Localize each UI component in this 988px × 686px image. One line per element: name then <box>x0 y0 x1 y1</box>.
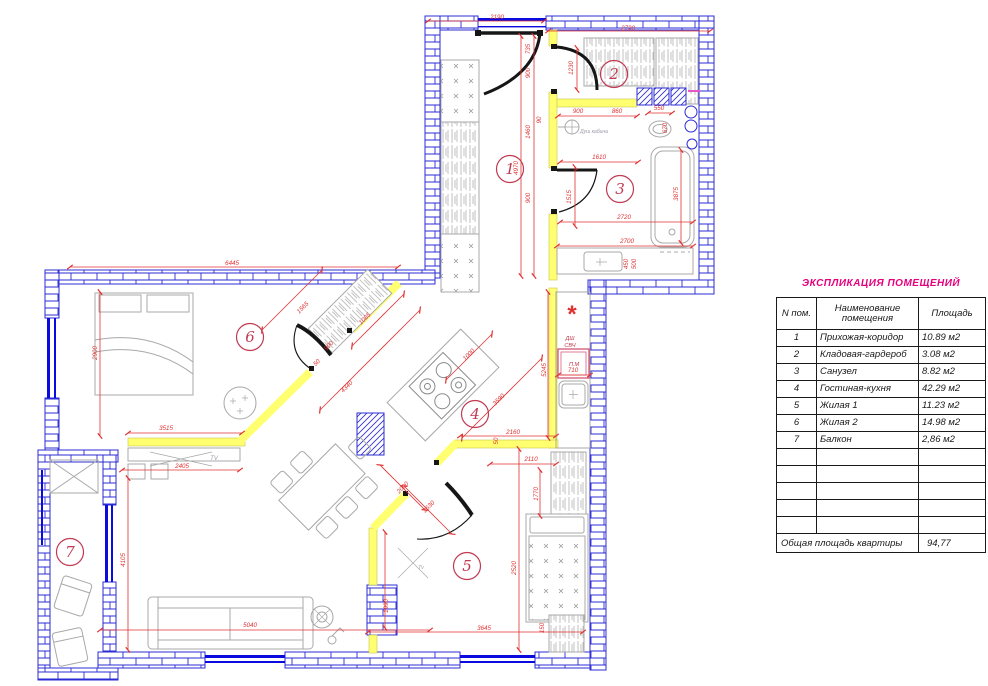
window-left <box>47 318 50 398</box>
chair <box>270 470 294 494</box>
dimension-label: 3590 <box>492 392 507 407</box>
chair <box>335 495 359 519</box>
wardrobe-room5-top <box>551 452 586 514</box>
table-header-row: N пом. Наименованиепомещения Площадь <box>777 298 985 330</box>
dimension-label: 1230 <box>568 61 575 75</box>
table-row: 6Жилая 214.98 м2 <box>777 415 985 432</box>
table-cell: 10.89 м2 <box>919 330 985 347</box>
window-bottom-1-inner <box>205 661 285 663</box>
wall-balcony-bottom <box>38 668 118 680</box>
window-left-inner <box>54 318 56 398</box>
room-number: 3 <box>615 180 625 198</box>
window-bottom-1 <box>205 655 285 658</box>
annotation-label: П.М <box>569 362 580 368</box>
table-cell: Кладовая-гардероб <box>817 347 919 364</box>
partition-room5-top <box>455 440 558 448</box>
door-room3 <box>551 166 597 214</box>
bed-room6 <box>95 293 193 395</box>
wall-balcony-left <box>38 455 50 680</box>
table-cell: 1 <box>777 330 817 347</box>
wall-bath-bottom <box>588 280 714 294</box>
window-bottom-2-inner <box>460 661 535 663</box>
room-number: 7 <box>65 543 75 561</box>
room-number: 5 <box>462 557 472 575</box>
table-cell: Санузел <box>817 364 919 381</box>
explication-table: ЭКСПЛИКАЦИЯ ПОМЕЩЕНИЙ N пом. Наименовани… <box>776 278 986 553</box>
dimension-lines <box>70 21 710 650</box>
dimension-label: 1770 <box>533 487 540 501</box>
table-cell: 8.82 м2 <box>919 364 985 381</box>
table-row <box>777 500 985 517</box>
bathroom-sink <box>584 252 622 271</box>
partition-room2-bottom <box>557 99 637 107</box>
pillow <box>530 517 584 533</box>
balcony-storage-box <box>50 460 98 493</box>
chair <box>355 476 379 500</box>
room-number: 1 <box>505 160 515 178</box>
wall-left-seg2 <box>45 398 59 455</box>
dimension-label: 50 <box>493 437 500 444</box>
header-num: N пом. <box>777 298 817 330</box>
shower-head-icon <box>558 120 579 134</box>
wardrobe-room5-bottom <box>549 615 584 652</box>
table-row <box>777 483 985 500</box>
table-cell: 3.08 м2 <box>919 347 985 364</box>
table-row: 1Прихожая-коридор10.89 м2 <box>777 330 985 347</box>
table-cell: 4 <box>777 381 817 398</box>
dimension-label: 670 <box>662 122 669 133</box>
dimension-label: 1565 <box>296 300 311 315</box>
table-cell <box>817 500 919 517</box>
dimension-label: 550 <box>654 105 665 112</box>
table-cell <box>817 449 919 466</box>
table-cell <box>777 500 817 517</box>
table-cell: Жилая 2 <box>817 415 919 432</box>
dimension-label: 5040 <box>243 622 257 629</box>
entry-door <box>475 30 543 94</box>
wardrobe-hall-mid <box>441 122 479 234</box>
table-cell: 2 <box>777 347 817 364</box>
table-cell <box>919 517 985 534</box>
wall-right-main <box>590 280 606 670</box>
wall-hall-left <box>425 16 440 278</box>
table-cell: 42.29 м2 <box>919 381 985 398</box>
table-cell: 11.23 м2 <box>919 398 985 415</box>
table-cell <box>919 483 985 500</box>
dimension-label: 1515 <box>566 190 573 204</box>
header-name: Наименованиепомещения <box>817 298 919 330</box>
plan-annotations: *ДШСВЧП.МДуш кабинаTVTv <box>210 129 608 571</box>
dimension-label: 2520 <box>511 561 518 576</box>
table-title: ЭКСПЛИКАЦИЯ ПОМЕЩЕНИЙ <box>776 278 986 289</box>
annotation-label: Душ кабина <box>579 129 608 135</box>
table-cell <box>817 517 919 534</box>
table-cell <box>919 500 985 517</box>
table-cell <box>817 466 919 483</box>
table-cell: 6 <box>777 415 817 432</box>
header-area: Площадь <box>919 298 985 330</box>
wall-bottom-seg2 <box>285 652 460 668</box>
wall-bottom-seg1 <box>98 652 205 668</box>
dimension-label: 2720 <box>620 25 635 32</box>
table-total-row: Общая площадь квартиры 94,77 <box>777 534 985 552</box>
dimension-label: 2630 <box>421 499 437 515</box>
side-table-round <box>311 606 333 628</box>
room-number: 6 <box>245 328 255 346</box>
window-balcony-left <box>41 470 43 545</box>
table-cell: 14.98 м2 <box>919 415 985 432</box>
table-cell: Прихожая-коридор <box>817 330 919 347</box>
wardrobe-hall-bottom <box>441 234 479 292</box>
door-room5 <box>403 460 472 539</box>
table-cell: 2,86 м2 <box>919 432 985 449</box>
table-row: 4Гостиная-кухня42.29 м2 <box>777 381 985 398</box>
table-row <box>777 449 985 466</box>
dimension-label: 5245 <box>541 363 548 377</box>
vent-shaft-room5 <box>367 585 397 635</box>
annotation-label: TV <box>210 456 219 462</box>
table-row <box>777 517 985 534</box>
dimension-label: 1000 <box>462 347 477 362</box>
plant-icon <box>224 387 256 419</box>
dimension-label: 1460 <box>525 125 532 139</box>
table-row: 7Балкон2,86 м2 <box>777 432 985 449</box>
table-cell <box>777 449 817 466</box>
dimension-label: 3515 <box>159 425 173 432</box>
dimension-label: 710 <box>568 367 579 374</box>
dimension-label: 3875 <box>673 187 680 201</box>
dimension-label: 450 <box>623 258 630 269</box>
dimension-label: 900 <box>573 108 584 115</box>
dimension-label: 90 <box>536 116 543 123</box>
dimension-label: 4105 <box>120 553 127 567</box>
table-cell <box>777 517 817 534</box>
room-number: 4 <box>469 405 480 423</box>
dimension-label: 735 <box>525 43 532 54</box>
table-cell <box>777 466 817 483</box>
annotation-label: Tv <box>418 565 424 571</box>
dimension-label: 2700 <box>619 238 634 245</box>
dimension-label: 6445 <box>225 260 239 267</box>
entry-lintel <box>478 18 546 21</box>
dimension-label: 2405 <box>174 463 189 470</box>
dimension-label: 500 <box>631 258 638 269</box>
kitchen-sink <box>559 381 588 408</box>
table-cell: 3 <box>777 364 817 381</box>
annotation-label: ДШ <box>565 336 576 342</box>
table-cell <box>817 483 919 500</box>
sofa <box>148 597 313 649</box>
table-cell: Гостиная-кухня <box>817 381 919 398</box>
chair <box>315 515 339 539</box>
table-cell <box>919 466 985 483</box>
table-cell: 5 <box>777 398 817 415</box>
kitchen-island <box>387 329 499 441</box>
dimension-label: 900 <box>525 192 532 203</box>
floor-plan-sheet: 2190272064457359001460900497012309008609… <box>0 0 988 686</box>
table-cell <box>919 449 985 466</box>
pillow <box>99 295 141 312</box>
partition-diag-room6-b <box>240 372 310 441</box>
dimension-label: 3645 <box>477 625 491 632</box>
wall-balcony-inner-seg1 <box>103 455 116 505</box>
dimension-label: 150 <box>539 622 546 633</box>
corner-marks-room5 <box>398 548 428 578</box>
dimension-label: 2160 <box>505 429 520 436</box>
balcony-chair-1 <box>53 575 92 617</box>
dimension-label: 900 <box>525 67 532 78</box>
dimension-label: 2720 <box>616 214 631 221</box>
room-number: 2 <box>608 65 619 83</box>
wall-right-top-block <box>699 16 714 294</box>
table-cell: Жилая 1 <box>817 398 919 415</box>
window-bottom-2 <box>460 655 535 658</box>
dimension-label: 1610 <box>592 154 606 161</box>
pipe-risers <box>685 106 697 149</box>
balcony-door-glass-inner <box>111 505 113 582</box>
entry-lintel-inner <box>478 26 546 27</box>
partition-diag-room5-b <box>373 494 406 528</box>
table-body: 1Прихожая-коридор10.89 м22Кладовая-гарде… <box>777 330 985 534</box>
dimension-label: 2900 <box>92 346 99 361</box>
chair <box>289 450 313 474</box>
annotation-label: СВЧ <box>564 343 575 349</box>
total-label: Общая площадь квартиры <box>777 534 919 552</box>
pillow <box>147 295 189 312</box>
table-cell: Балкон <box>817 432 919 449</box>
dimension-label: 860 <box>612 108 623 115</box>
wardrobe-hall-top <box>441 60 479 122</box>
storage-boxes <box>637 88 686 105</box>
dimension-label: 4340 <box>340 379 355 394</box>
annotation-label: * <box>566 301 577 328</box>
table-cell <box>777 483 817 500</box>
table-row: 3Санузел8.82 м2 <box>777 364 985 381</box>
partition-room5-left <box>369 528 377 585</box>
dimension-label: 1990 <box>383 599 390 613</box>
dimension-label: 2110 <box>523 456 538 463</box>
partition-diag-room5-a <box>437 442 457 463</box>
total-value: 94,77 <box>919 534 985 552</box>
partition-tv-wall <box>128 438 245 446</box>
rooms-table: N пом. Наименованиепомещения Площадь 1Пр… <box>776 297 986 553</box>
dimension-label: 2190 <box>489 14 504 21</box>
table-cell: 7 <box>777 432 817 449</box>
table-row <box>777 466 985 483</box>
wall-left-seg1 <box>45 270 59 318</box>
floor-plan-drawing: 2190272064457359001460900497012309008609… <box>0 0 778 686</box>
balcony-door-glass <box>105 505 108 582</box>
bed-room5 <box>526 514 588 622</box>
balcony-chair-2 <box>52 627 88 666</box>
table-row: 2Кладовая-гардероб3.08 м2 <box>777 347 985 364</box>
table-row: 5Жилая 111.23 м2 <box>777 398 985 415</box>
